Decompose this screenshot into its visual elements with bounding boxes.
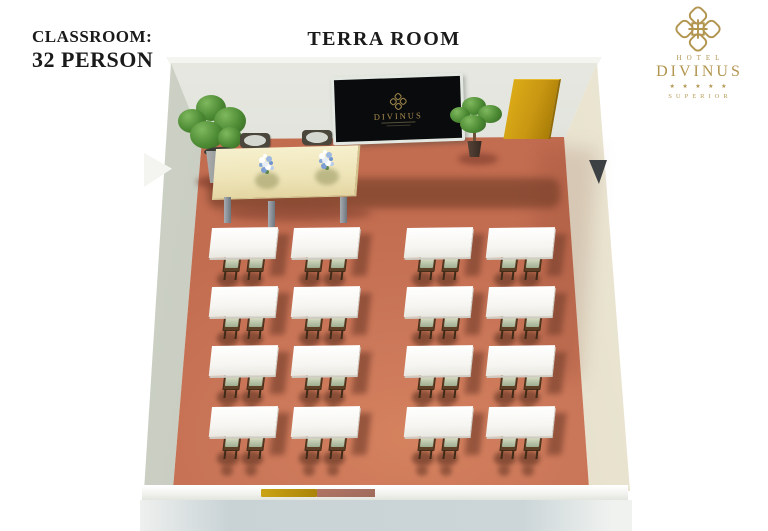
student-table	[404, 227, 473, 258]
chair	[416, 254, 436, 280]
chair	[416, 433, 436, 459]
chair	[221, 254, 241, 280]
chair	[440, 433, 460, 459]
chair-shadow	[327, 465, 339, 476]
student-table-group	[407, 407, 481, 479]
chair-shadow	[303, 465, 315, 476]
chair-shadow	[440, 465, 452, 476]
student-table-group	[212, 407, 286, 479]
student-table	[209, 286, 278, 317]
chair-shadow	[416, 465, 428, 476]
front-door-top	[261, 489, 317, 497]
student-table-group	[294, 407, 368, 479]
student-table	[291, 406, 360, 437]
chair	[416, 313, 436, 339]
chair	[498, 313, 518, 339]
student-table	[291, 227, 360, 258]
chair	[245, 433, 265, 459]
logo-hotel-word: HOTEL	[640, 54, 756, 62]
hotel-logo: HOTEL DIVINUS ★ ★ ★ ★ ★ SUPERIOR	[640, 6, 756, 100]
chair	[327, 372, 347, 398]
chair	[327, 433, 347, 459]
chair	[245, 254, 265, 280]
chair	[522, 433, 542, 459]
student-table	[404, 406, 473, 437]
student-table	[486, 406, 555, 437]
logo-brand: DIVINUS	[640, 63, 756, 81]
page: CLASSROOM: 32 PERSON TERRA ROOM HOTEL DI…	[0, 0, 768, 531]
student-table	[404, 345, 473, 376]
front-wall-top	[142, 486, 628, 500]
student-table	[209, 227, 278, 258]
chair	[245, 372, 265, 398]
chair-shadow	[221, 465, 233, 476]
logo-stars: ★ ★ ★ ★ ★	[640, 83, 756, 90]
chair	[522, 254, 542, 280]
student-table	[291, 345, 360, 376]
chair	[245, 313, 265, 339]
chair	[440, 254, 460, 280]
student-table	[209, 406, 278, 437]
student-table-group	[489, 407, 563, 479]
student-table	[486, 227, 555, 258]
chair	[522, 313, 542, 339]
front-wall	[140, 500, 632, 531]
chair-shadow	[498, 465, 510, 476]
chair	[498, 433, 518, 459]
chair	[498, 372, 518, 398]
chair	[303, 254, 323, 280]
chair	[303, 372, 323, 398]
chair	[416, 372, 436, 398]
student-table	[486, 286, 555, 317]
chair-shadow	[245, 465, 257, 476]
chair	[327, 254, 347, 280]
chair	[221, 372, 241, 398]
student-table	[291, 286, 360, 317]
chair	[498, 254, 518, 280]
chair	[221, 313, 241, 339]
student-tables-layer	[140, 55, 632, 531]
chair	[303, 433, 323, 459]
chair	[440, 313, 460, 339]
room-diagram: DIVINUS	[140, 55, 632, 531]
student-table	[486, 345, 555, 376]
chair	[440, 372, 460, 398]
chair	[221, 433, 241, 459]
chair-shadow	[522, 465, 534, 476]
chair	[303, 313, 323, 339]
logo-emblem-icon	[675, 6, 721, 52]
logo-tier: SUPERIOR	[640, 93, 756, 100]
student-table	[404, 286, 473, 317]
chair	[522, 372, 542, 398]
student-table	[209, 345, 278, 376]
front-wall-detail	[317, 489, 375, 497]
chair	[327, 313, 347, 339]
